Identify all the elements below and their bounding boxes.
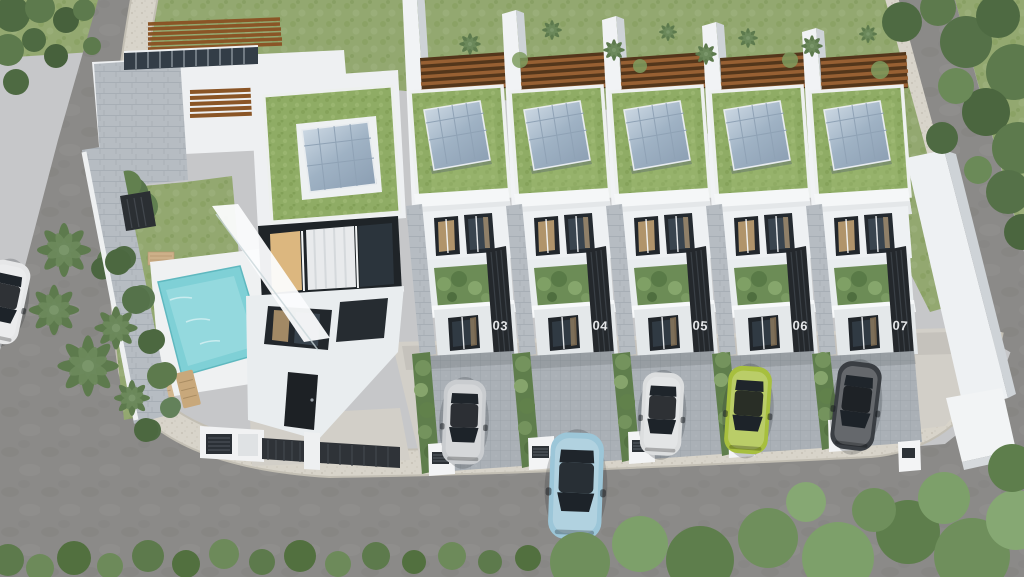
solar-panel [724,101,792,174]
car-silver-driveway-03 [438,376,491,470]
solar-panel [424,101,492,174]
unit-number: 05 [692,317,708,333]
scene-svg: 03 [0,0,1024,577]
solar-panel [524,101,592,174]
unit-number: 04 [592,317,609,333]
fence-post [304,432,320,470]
utility-box-end [898,440,921,472]
solar-panel [624,101,692,174]
unit-number: 07 [892,317,908,333]
car-blue-street [543,428,610,546]
corner-villa [82,19,406,441]
villa-solar-panel [302,122,377,192]
unit-number: 03 [492,317,508,333]
aerial-render-image: Aerial 3D architectural rendering of a m… [0,0,1024,577]
unit-number: 06 [792,317,808,333]
villa-door [284,372,318,430]
solar-panel [824,101,892,174]
garden-gate [120,191,156,231]
townhouse-unit-04: 04 [502,10,622,470]
